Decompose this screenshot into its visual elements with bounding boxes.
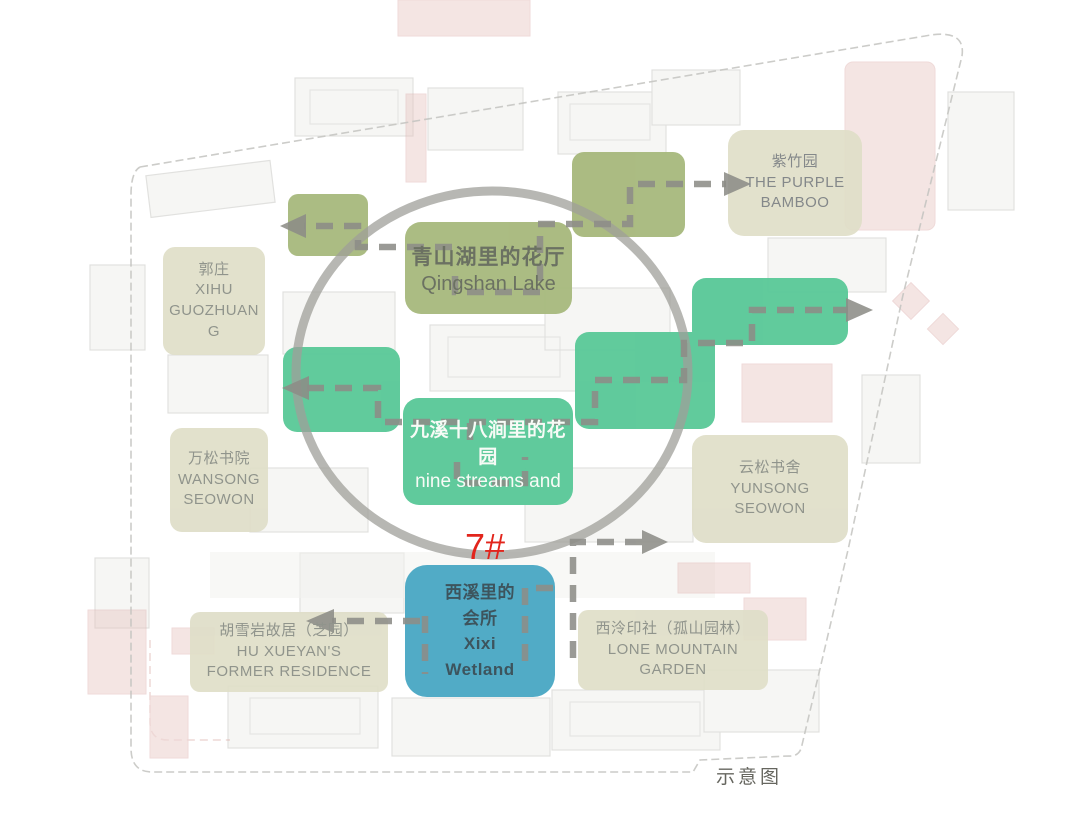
label-lone-mountain: 西泠印社（孤山园林） LONE MOUNTAIN GARDEN — [578, 610, 768, 690]
blocks-layer — [0, 0, 1080, 824]
label-purple-bamboo: 紫竹园 THE PURPLE BAMBOO — [728, 130, 862, 236]
mint-blocks — [283, 278, 848, 505]
olive-block-upper — [572, 152, 685, 237]
nine-streams-block — [403, 398, 573, 505]
purple-bamboo-block — [728, 130, 862, 236]
xixi-clubhouse-block — [405, 565, 555, 697]
route-center — [307, 310, 848, 422]
wansong-cn-text: 万松书院 — [188, 449, 250, 470]
purple-bamboo-en-text: THE PURPLE BAMBOO — [745, 173, 844, 214]
mint-block-far-right — [692, 278, 848, 345]
xixi-en-text: Xixi Wetland — [445, 631, 514, 682]
site-plan-diagram: 青山湖里的花厅 Qingshan Lake 紫竹园 THE PURPLE BAM… — [0, 0, 1080, 824]
arrowhead-left-center — [282, 376, 309, 400]
mint-block-left — [283, 347, 400, 432]
arrowhead-right-bamboo — [724, 172, 751, 196]
arrowhead-right-bottom — [642, 530, 668, 554]
wansong-en-text: WANSONG SEOWON — [178, 470, 260, 511]
beige-blocks — [163, 130, 862, 692]
yunsong-en-text: YUNSONG SEOWON — [730, 479, 809, 520]
arrowhead-left-top — [280, 214, 306, 238]
building-7-marker: 7# — [450, 526, 520, 568]
route-ninestreams-loop — [457, 423, 525, 483]
mint-block-mid-right — [575, 332, 715, 429]
background-layer — [0, 0, 1080, 824]
label-yunsong: 云松书舍 YUNSONG SEOWON — [692, 435, 848, 543]
dashed-routes — [304, 184, 848, 674]
arrowhead-left-bottom — [306, 609, 334, 633]
nine-streams-en-text: nine streams and — [415, 471, 561, 493]
guozhuang-block — [163, 247, 265, 355]
focus-circle — [296, 191, 688, 555]
label-qingshan-lake: 青山湖里的花厅 Qingshan Lake — [405, 222, 572, 314]
arrowhead-right-center — [846, 298, 873, 322]
lone-mountain-en-text: LONE MOUNTAIN GARDEN — [608, 640, 738, 681]
hu-xueyan-en-text: HU XUEYAN'S FORMER RESIDENCE — [207, 642, 372, 683]
route-qingshan-loop — [455, 230, 540, 292]
olive-block-small — [288, 194, 368, 256]
faint-building-plans — [90, 70, 1014, 756]
purple-bamboo-cn-text: 紫竹园 — [772, 152, 819, 173]
label-nine-streams: 九溪十八涧里的花园 nine streams and — [403, 402, 573, 505]
guozhuang-en-text: XIHU GUOZHUAN G — [169, 280, 259, 342]
site-boundary-line — [131, 34, 962, 772]
label-wansong: 万松书院 WANSONG SEOWON — [170, 428, 268, 532]
label-guozhuang: 郭庄 XIHU GUOZHUAN G — [163, 247, 265, 355]
xixi-cn-text: 西溪里的 会所 — [445, 580, 515, 631]
qingshan-en-text: Qingshan Lake — [421, 273, 556, 296]
lone-mountain-block — [578, 610, 768, 690]
qingshan-lake-block — [405, 222, 572, 314]
route-top-left — [304, 226, 452, 247]
diagram-caption: 示意图 — [716, 762, 782, 789]
hu-xueyan-block — [190, 612, 388, 692]
faint-pink-structures — [88, 0, 959, 758]
qingshan-cn-text: 青山湖里的花厅 — [412, 241, 566, 271]
route-xixi-loop — [425, 588, 553, 674]
hu-xueyan-cn-text: 胡雪岩故居（芝园） — [219, 621, 359, 642]
route-bottom-right — [573, 542, 644, 658]
label-xixi-clubhouse: 西溪里的 会所 Xixi Wetland — [405, 565, 555, 697]
guozhuang-cn-text: 郭庄 — [198, 260, 229, 281]
lone-mountain-cn-text: 西泠印社（孤山园林） — [595, 619, 750, 640]
route-top-right — [538, 184, 726, 224]
wansong-block — [170, 428, 268, 532]
label-hu-xueyan: 胡雪岩故居（芝园） HU XUEYAN'S FORMER RESIDENCE — [190, 612, 388, 692]
yunsong-cn-text: 云松书舍 — [739, 458, 801, 479]
route-arrowheads — [280, 172, 873, 633]
nine-streams-cn-text: 九溪十八涧里的花园 — [403, 415, 573, 469]
yunsong-block — [692, 435, 848, 543]
routes-layer — [0, 0, 1080, 824]
olive-blocks — [288, 152, 685, 314]
